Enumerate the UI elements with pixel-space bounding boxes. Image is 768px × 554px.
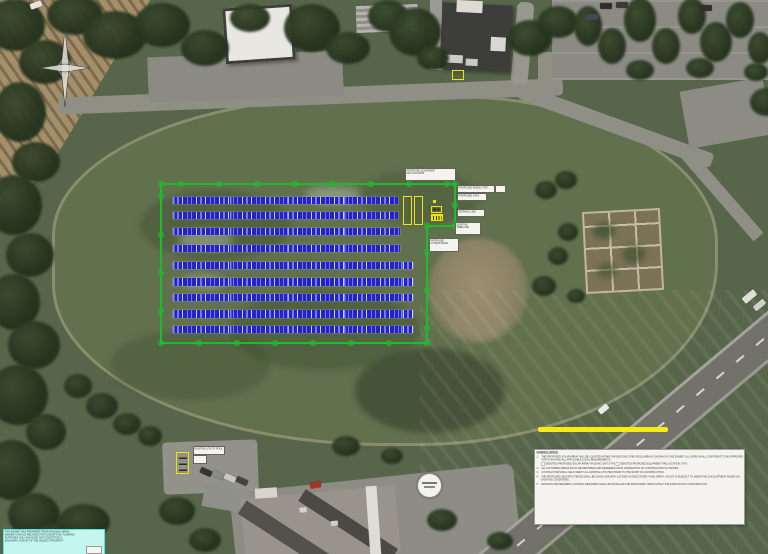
legend-label: DENOTES PROPOSED SOLAR ARRAY RACKING UNI… [546, 463, 616, 466]
callout-line: TREE LINE [457, 226, 481, 229]
note-text: THE PROPOSED SOLAR ARRAY WILL BE LOCATED… [541, 455, 745, 461]
general-notes-box: GENERAL NOTES: 1.THE PROPOSED SOLAR ARRA… [534, 449, 745, 525]
callout-text: PROPOSED GATE [458, 194, 487, 197]
callout-line: ACCESS ROAD [431, 242, 459, 245]
aerial-site-plan: PROPOSED EQUIPMENTPAD LOCATIONPROPOSED F… [0, 0, 768, 554]
note-item: 3.CONTRACTOR SHALL FIELD VERIFY ALL EXIS… [537, 471, 745, 474]
source-note-line: BOUNDARY SURVEY OF THE SUBJECT PROPERTY [5, 539, 105, 542]
legend-symbol-square [616, 463, 619, 466]
note-item: 1.THE PROPOSED SOLAR ARRAY WILL BE LOCAT… [537, 455, 745, 461]
source-note-text: THIS EXHIBIT WAS PREPARED FROM AVAILABLE… [4, 530, 106, 543]
callout-label: PROPOSEDACCESS ROAD [429, 238, 459, 252]
note-item: 4.THE PROPOSED SECURITY FENCE SHALL BE C… [537, 475, 745, 481]
callout-text: PROPOSED FENCE (TYP.) [458, 186, 495, 189]
callout-text [194, 456, 207, 457]
callout-label [193, 455, 207, 464]
callout-label: PROPOSED GATE [457, 193, 487, 201]
general-notes-title: GENERAL NOTES: [537, 451, 745, 454]
callout-text: EXISTINGTREE LINE [456, 223, 481, 229]
callout-line: PAD LOCATION [407, 172, 456, 175]
note-text: THE PROPOSED SECURITY FENCE SHALL BE CHA… [541, 475, 745, 481]
callout-text: PROPOSEDACCESS ROAD [430, 239, 459, 245]
callout-line: EXISTING UTILITY POLE [195, 447, 225, 450]
note-text: EROSION AND SEDIMENT CONTROL MEASURES SH… [541, 483, 745, 486]
callout-label: PROPOSED EQUIPMENTPAD LOCATION [405, 168, 456, 181]
callout-label: EXISTINGTREE LINE [455, 222, 481, 235]
callout-text: SETBACK LINE [458, 210, 485, 213]
source-note-box: THIS EXHIBIT WAS PREPARED FROM AVAILABLE… [3, 529, 105, 554]
callout-label: PROPOSED FENCE (TYP.) [457, 185, 495, 193]
legend-label: DENOTES PROPOSED EQUIPMENT PAD LOCATION … [620, 463, 687, 466]
general-notes-content: GENERAL NOTES: 1.THE PROPOSED SOLAR ARRA… [535, 450, 745, 488]
general-notes-list: 1.THE PROPOSED SOLAR ARRAY WILL BE LOCAT… [537, 455, 745, 486]
source-note-stamp [86, 546, 102, 554]
callout-text: PROPOSED EQUIPMENTPAD LOCATION [406, 169, 456, 175]
callout-text [496, 186, 506, 187]
note-text: CONTRACTOR SHALL FIELD VERIFY ALL EXISTI… [541, 471, 745, 474]
callout-line: PROPOSED FENCE (TYP.) [459, 186, 495, 189]
note-text: ALL DISTURBED AREAS SHALL BE RESTORED AN… [541, 467, 745, 470]
note-item: 2.ALL DISTURBED AREAS SHALL BE RESTORED … [537, 467, 745, 470]
callout-line: PROPOSED GATE [459, 194, 487, 197]
note-legend-row: DENOTES PROPOSED SOLAR ARRAY RACKING UNI… [537, 463, 745, 466]
legend-entries: DENOTES PROPOSED SOLAR ARRAY RACKING UNI… [541, 463, 745, 466]
callout-line: SETBACK LINE [459, 210, 485, 213]
callout-label: SETBACK LINE [457, 209, 485, 217]
callout-label: EXISTING UTILITY POLE [193, 446, 225, 455]
callout-text: EXISTING UTILITY POLE [194, 447, 225, 450]
note-item: 5.EROSION AND SEDIMENT CONTROL MEASURES … [537, 483, 745, 486]
callout-label [495, 185, 506, 193]
legend-symbol-square [541, 463, 544, 466]
